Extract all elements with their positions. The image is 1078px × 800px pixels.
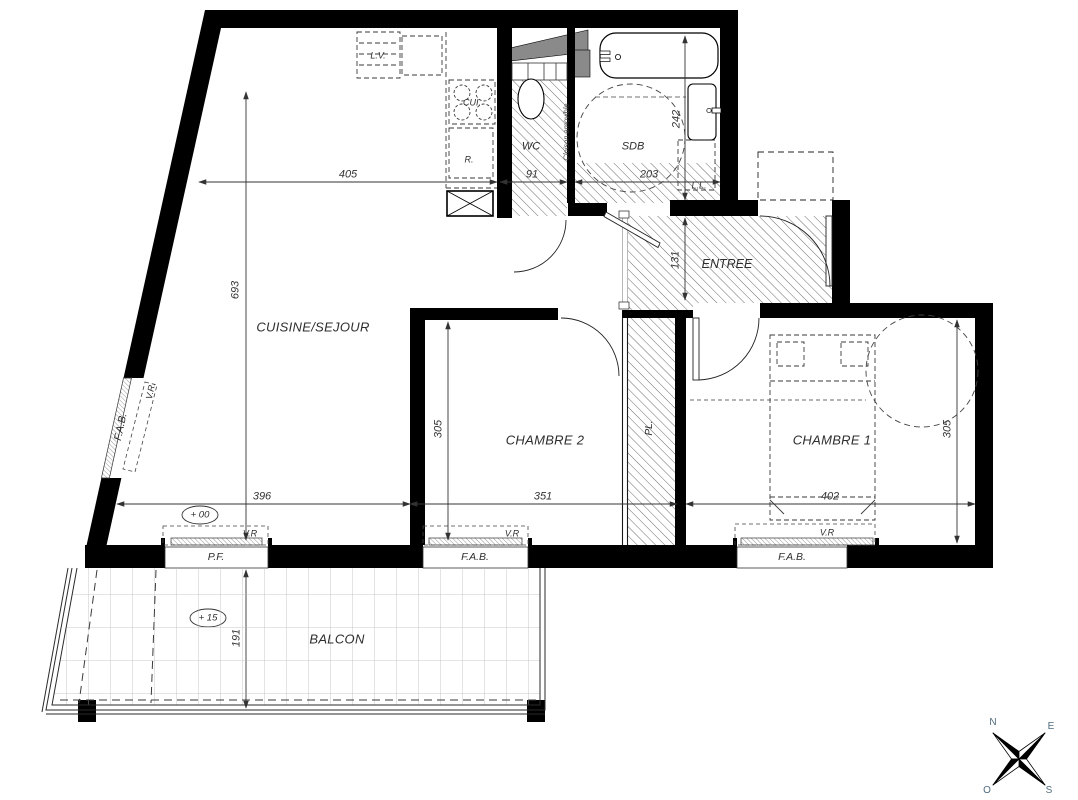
- window-label-pf: P.F.: [208, 552, 225, 563]
- dim-sejour-bottom-width: 396: [253, 492, 271, 503]
- bed-icon: [690, 335, 875, 520]
- dim-sejour-width: 405: [339, 170, 357, 181]
- level-marker-balcony: + 15: [199, 613, 218, 623]
- compass-south-label: S: [1046, 786, 1053, 796]
- room-label-wc: WC: [522, 142, 540, 153]
- compass-west-label: O: [983, 786, 991, 796]
- room-label-chambre2: CHAMBRE 2: [506, 434, 585, 447]
- level-marker-main: + 00: [191, 510, 210, 520]
- dim-balcon-depth: 191: [232, 629, 243, 647]
- wall-corner-ticks: [207, 12, 991, 566]
- room-label-cuisine-sejour: CUISINE/SEJOUR: [256, 321, 369, 334]
- window-label-fab-ch1: F.A.B.: [778, 552, 806, 563]
- balcony: [42, 568, 545, 714]
- counter-module-icon: [402, 36, 442, 75]
- dim-chambre1-width: 402: [821, 492, 839, 503]
- floor-plan-canvas: [0, 0, 1078, 800]
- shaft-icon: [447, 191, 493, 216]
- shutter-label-pf: V.R: [243, 530, 257, 539]
- dim-sdb-width: 203: [640, 170, 658, 181]
- wc-door-arc: [514, 220, 566, 272]
- chambre1-door-leaf: [693, 318, 699, 380]
- fridge-label: R.: [465, 156, 474, 165]
- chambre2-door-arc: [561, 318, 619, 376]
- dim-chambre2-width: 351: [534, 492, 552, 503]
- room-label-chambre1: CHAMBRE 1: [793, 434, 872, 447]
- room-label-entree: ENTREE: [702, 258, 753, 271]
- windows: [101, 378, 879, 568]
- compass-icon: [993, 733, 1045, 785]
- dim-wc-width: 91: [526, 170, 538, 181]
- fab-window1-icon: [741, 538, 873, 545]
- fab-window2-icon: [429, 538, 522, 545]
- shutter-label-ch2: V.R: [505, 530, 519, 539]
- dim-chambre1-depth: 305: [943, 420, 954, 438]
- dim-chambre2-depth: 305: [434, 420, 445, 438]
- partition-note: Cloison amovible: [562, 103, 570, 160]
- dim-sdb-depth: 242: [672, 110, 683, 128]
- compass-east-label: E: [1048, 722, 1055, 732]
- fridge-icon: [449, 128, 493, 178]
- chambre1-door-arc: [699, 318, 759, 380]
- toilet-icon: [518, 79, 544, 119]
- dim-entree-depth: 131: [671, 251, 682, 269]
- dishwasher-label: L.V.: [370, 52, 385, 61]
- shutter-label-ch1: V.R: [820, 529, 834, 538]
- room-label-placard: PL.: [645, 420, 655, 435]
- bathtub-icon: [600, 33, 718, 78]
- wc-shelf-icon: [512, 63, 567, 80]
- floor-plan-page: CUISINE/SEJOUR CHAMBRE 2 CHAMBRE 1 ENTRE…: [0, 0, 1078, 800]
- washer-label: L.L.: [691, 182, 706, 191]
- room-label-sdb: SDB: [622, 142, 645, 153]
- window-label-fab-ch2: F.A.B.: [461, 552, 489, 563]
- compass-north-label: N: [989, 718, 996, 728]
- placard-partition-lines: [623, 218, 628, 545]
- room-label-balcon: BALCON: [309, 633, 364, 646]
- dim-sejour-depth: 693: [231, 281, 242, 299]
- cooktop-label: CUI.: [463, 99, 481, 108]
- landing-outline: [758, 152, 833, 200]
- pf-window-icon: [171, 538, 262, 545]
